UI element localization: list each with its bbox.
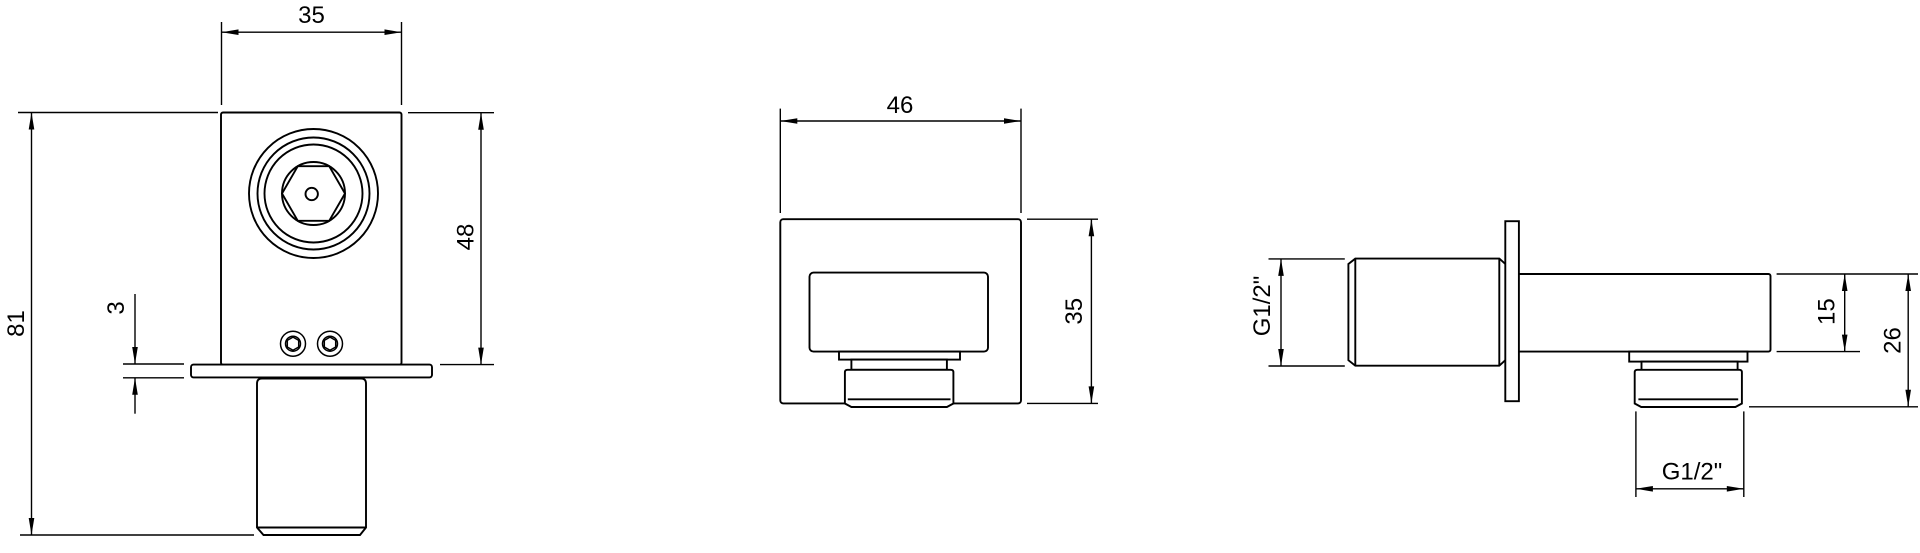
svg-text:46: 46 [887,92,914,119]
svg-text:48: 48 [453,224,480,251]
svg-text:35: 35 [1061,298,1088,325]
svg-text:G1/2": G1/2" [1249,276,1276,337]
svg-text:G1/2": G1/2" [1662,459,1723,486]
svg-text:81: 81 [3,310,30,337]
svg-text:15: 15 [1814,298,1841,325]
svg-text:3: 3 [103,301,130,314]
svg-text:26: 26 [1880,327,1907,354]
svg-text:35: 35 [298,2,325,29]
